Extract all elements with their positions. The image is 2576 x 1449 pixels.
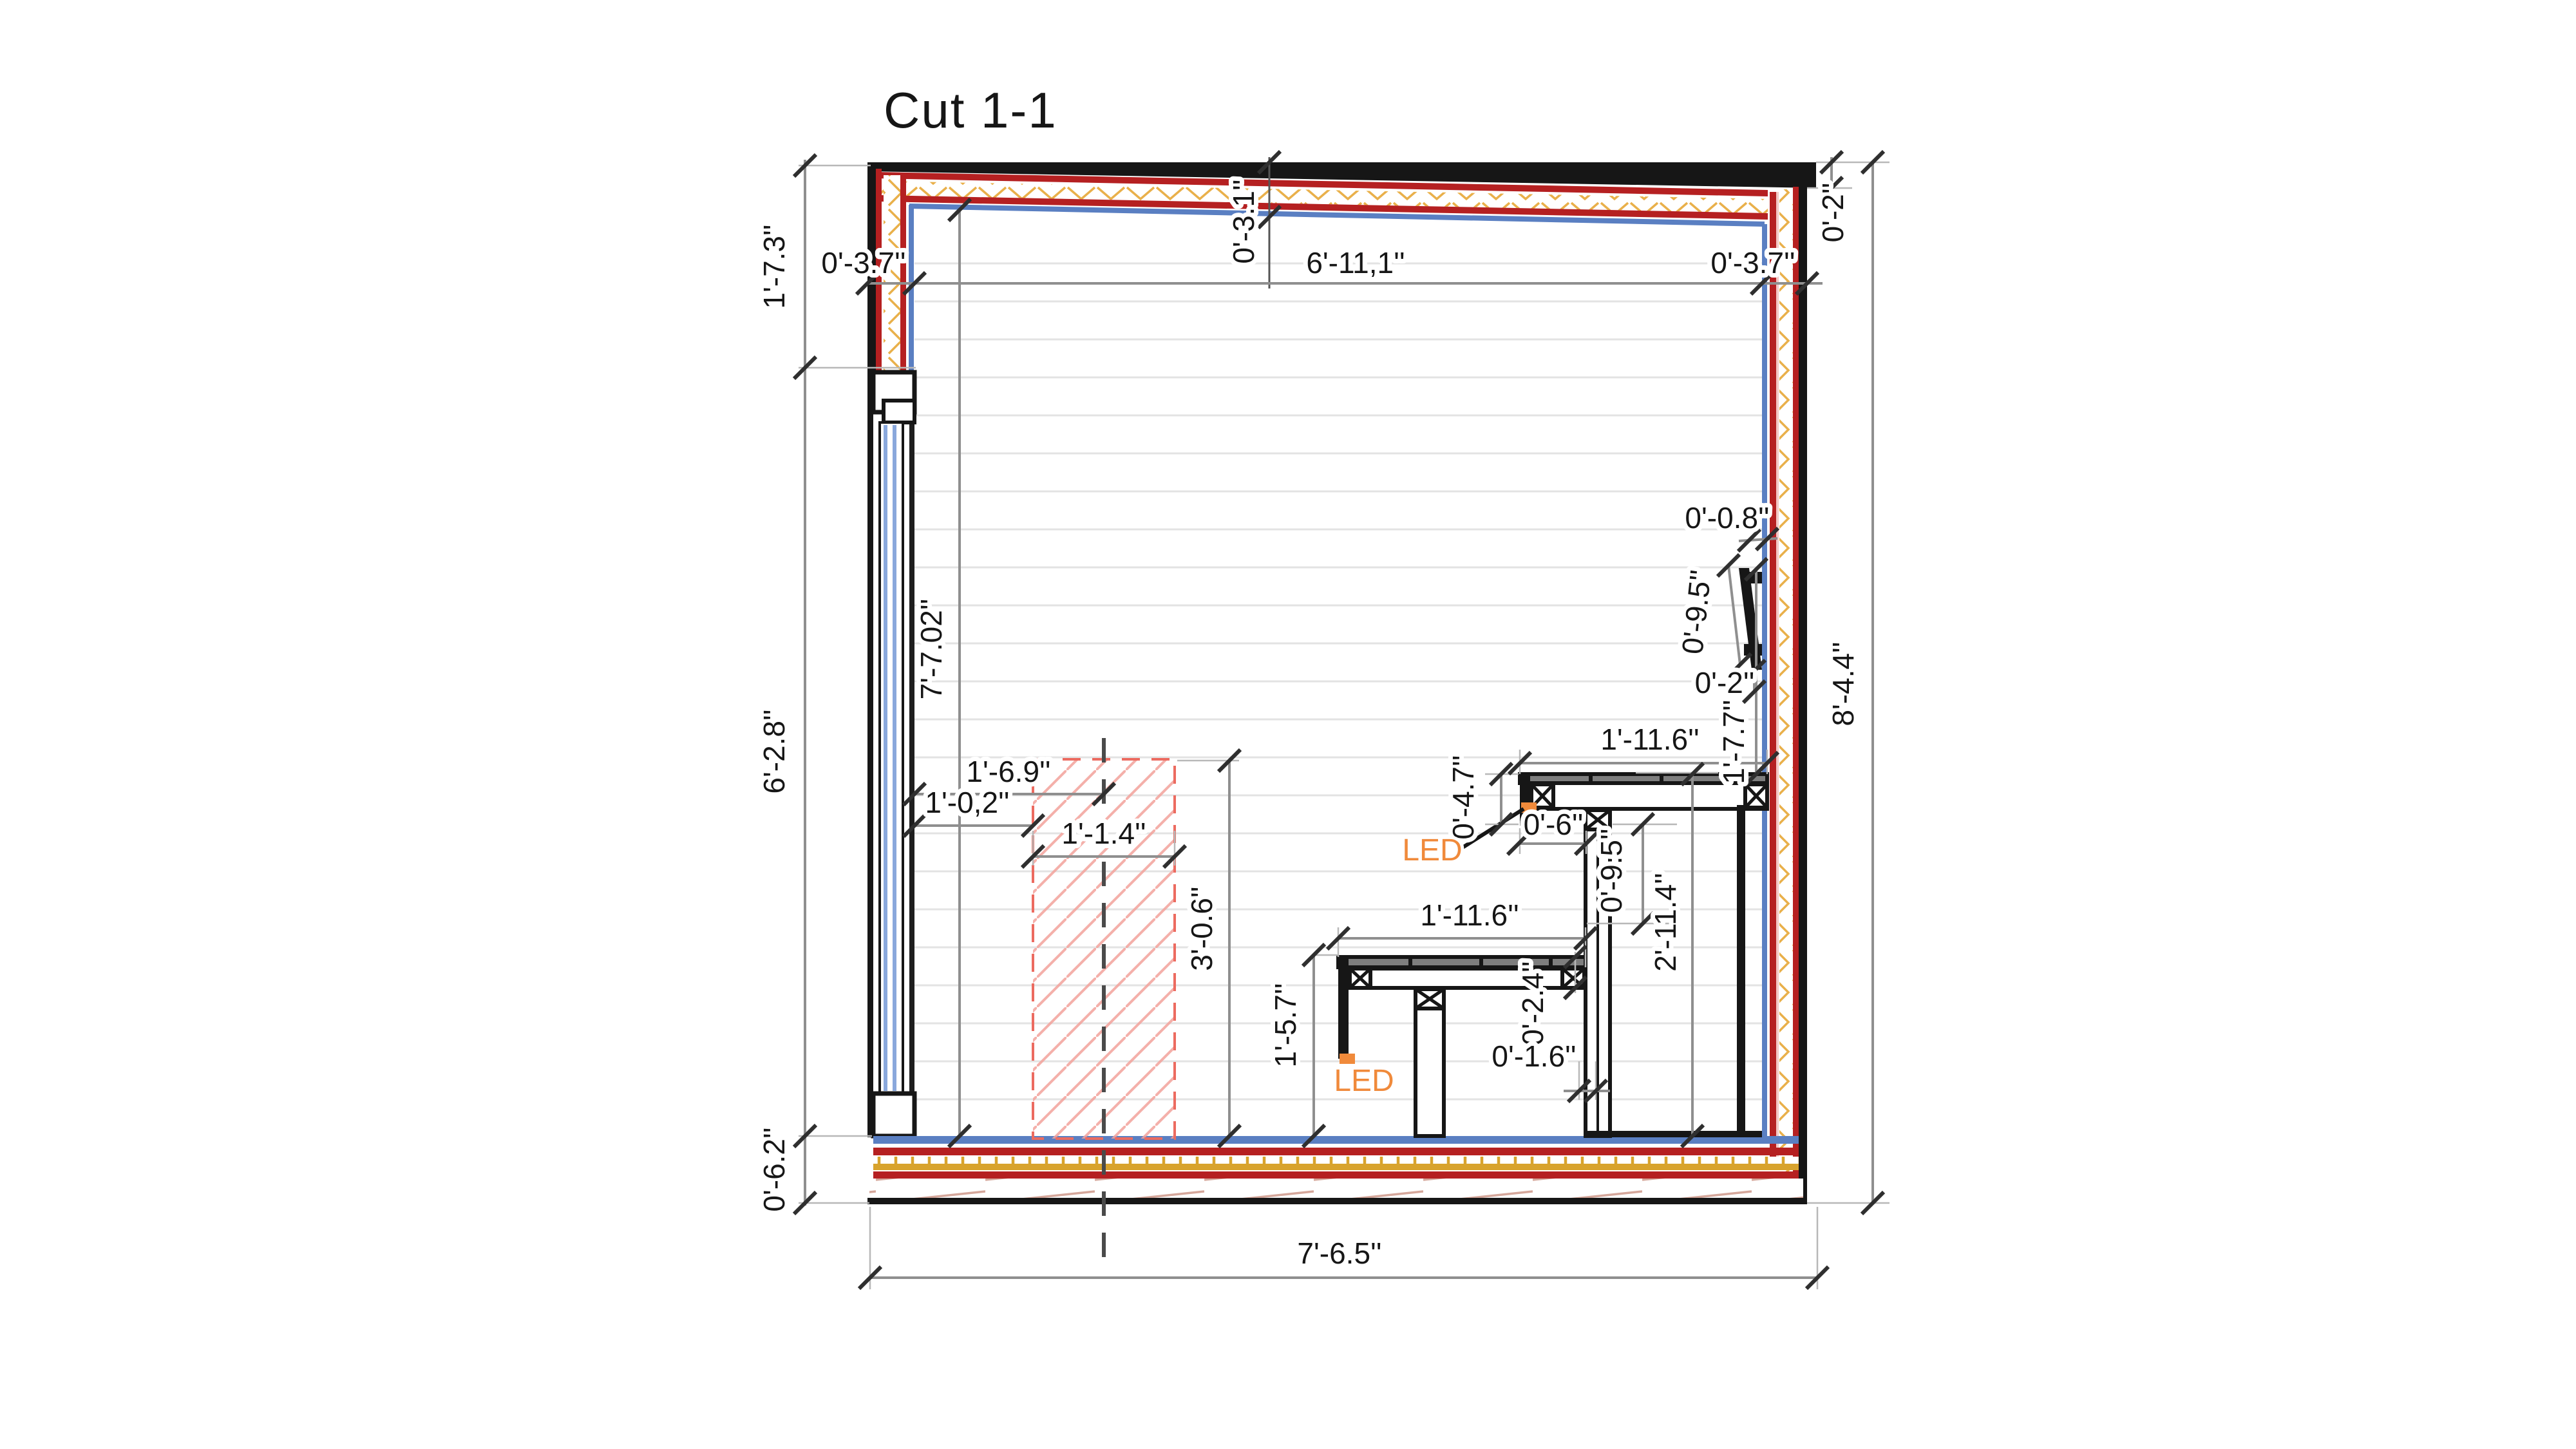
dim-wall-thickness-left: 0'-3.7'' — [821, 246, 905, 279]
door-glass-pane-1 — [884, 425, 887, 1091]
led-strip-lower — [1340, 1054, 1355, 1064]
dim-interior-height: 7'-7.02'' — [914, 599, 948, 700]
dim-backrest-to-bench: 1'-7.7'' — [1717, 699, 1750, 784]
dim-floor-thickness: 0'-6.2'' — [757, 1127, 791, 1211]
dim-heater-center-offset: 1'-6.9'' — [966, 755, 1050, 788]
led-label-upper: LED — [1402, 833, 1462, 867]
lower-bench-frame — [1349, 969, 1586, 988]
upper-bench-base-rail — [1586, 1131, 1762, 1137]
dim-bench-lower-depth: 1'-11.6'' — [1420, 898, 1519, 932]
floor-bottom-line — [867, 1198, 1807, 1204]
right-wall-vapor-layer — [1776, 192, 1779, 1158]
dim-bench-plank-thickness: 0'-2.4'' — [1516, 961, 1549, 1045]
dim-bench-step-height: 0'-9.5'' — [1595, 828, 1628, 913]
lower-bench-leg-xblock — [1416, 989, 1444, 1009]
right-wall — [1762, 165, 1807, 1203]
drawing-title: Cut 1-1 — [884, 82, 1057, 138]
dim-roof-edge-right: 0'-2'' — [1816, 183, 1850, 243]
dim-total-height: 8'-4.4'' — [1826, 641, 1860, 726]
lower-bench-xblock-right — [1562, 969, 1584, 988]
lower-bench-xblock-left — [1350, 969, 1370, 988]
upper-bench-leg-xblock — [1586, 810, 1610, 829]
door-glass-pane-2 — [893, 425, 896, 1091]
drawing-canvas: Cut 1-1 6'-11,1'' 0'-3.7'' 0'-3.7'' 0'-3… — [0, 0, 2576, 1449]
upper-bench-xblock-right — [1745, 784, 1767, 808]
dim-bench-lower-height: 1'-5.7'' — [1269, 983, 1302, 1067]
dim-left-upper: 1'-7.3'' — [757, 224, 791, 308]
dim-bench-upper-height: 2'-11.4'' — [1649, 873, 1682, 971]
dim-total-width: 7'-6.5'' — [1297, 1236, 1381, 1270]
dim-wall-thickness-right: 0'-3.7'' — [1710, 246, 1795, 279]
door-glass-unit — [880, 422, 903, 1094]
upper-bench-rear-support — [1737, 805, 1745, 1135]
floor-assembly — [867, 1136, 1807, 1204]
glass-door — [867, 372, 914, 1137]
dim-heater-height: 3'-0.6'' — [1185, 886, 1218, 971]
sauna-section-drawing: { "title": "Cut 1-1", "colors": { "wall_… — [0, 0, 2576, 1449]
led-label-lower: LED — [1334, 1064, 1394, 1098]
dim-bench-upper-thickness: 0'-4.7'' — [1446, 755, 1480, 839]
dim-backrest-top-gap: 0'-0.8'' — [1685, 501, 1769, 535]
door-frame-bottom — [873, 1094, 914, 1136]
dim-ceiling-span: 6'-11,1'' — [1306, 246, 1405, 279]
upper-bench-frame — [1530, 783, 1767, 809]
dim-heater-side-offset: 1'-0,2'' — [925, 786, 1009, 819]
lower-bench-front-board — [1338, 957, 1349, 1059]
dim-ceiling-thickness: 0'-3.1'' — [1227, 179, 1260, 263]
dim-bench-leg-thickness: 0'-1.6'' — [1492, 1039, 1576, 1073]
dim-bench-upper-overhang: 0'-6'' — [1524, 808, 1584, 841]
dim-heater-width: 1'-1.4'' — [1061, 817, 1146, 850]
dim-bench-upper-depth: 1'-11.6'' — [1600, 723, 1699, 756]
floor-screed-hatch — [869, 1179, 1803, 1198]
dim-left-glass: 6'-2.8'' — [757, 709, 791, 793]
dim-backrest-bottom-gap: 0'-2'' — [1695, 666, 1755, 699]
